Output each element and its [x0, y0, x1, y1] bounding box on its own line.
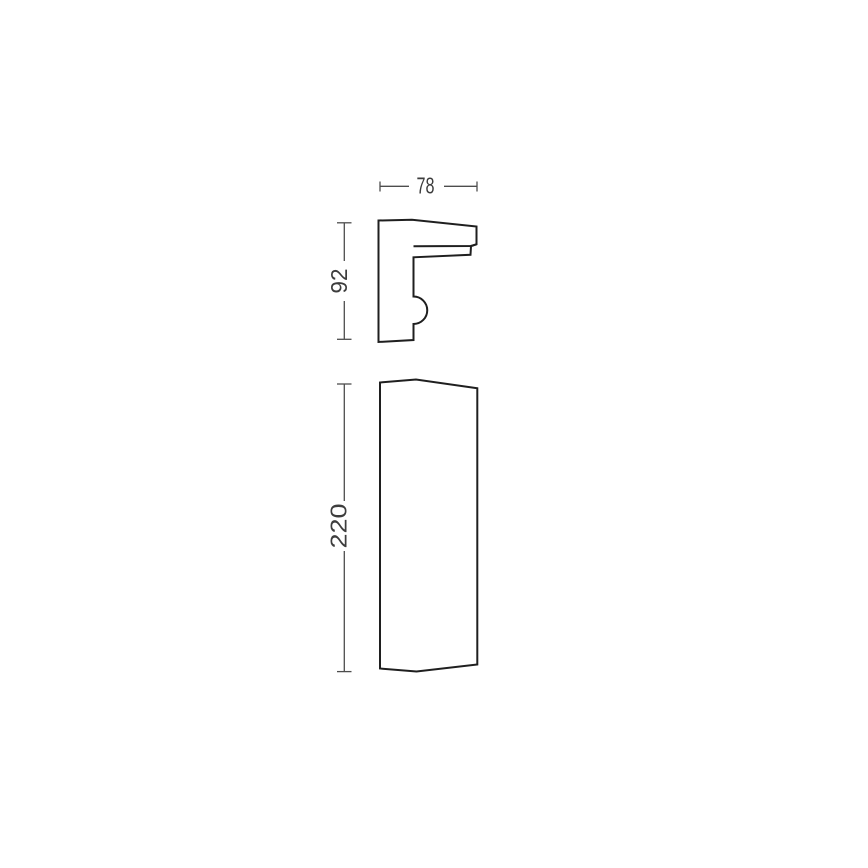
dimension-front-height: 220 — [326, 384, 352, 672]
lamp-arm-underside-line — [414, 244, 477, 246]
side-profile-outline — [379, 220, 477, 342]
dimension-side-height-label: 92 — [326, 269, 352, 294]
dimension-width-label: 78 — [417, 172, 435, 198]
dimension-front-height-label: 220 — [326, 504, 352, 549]
dimension-side-height: 92 — [326, 223, 352, 339]
dimension-width: 78 — [380, 172, 477, 198]
front-elevation-view — [380, 380, 477, 672]
front-elevation-outline — [380, 380, 477, 672]
dimension-drawing-canvas: 78 92 220 — [0, 0, 868, 868]
side-profile-view — [379, 220, 477, 342]
